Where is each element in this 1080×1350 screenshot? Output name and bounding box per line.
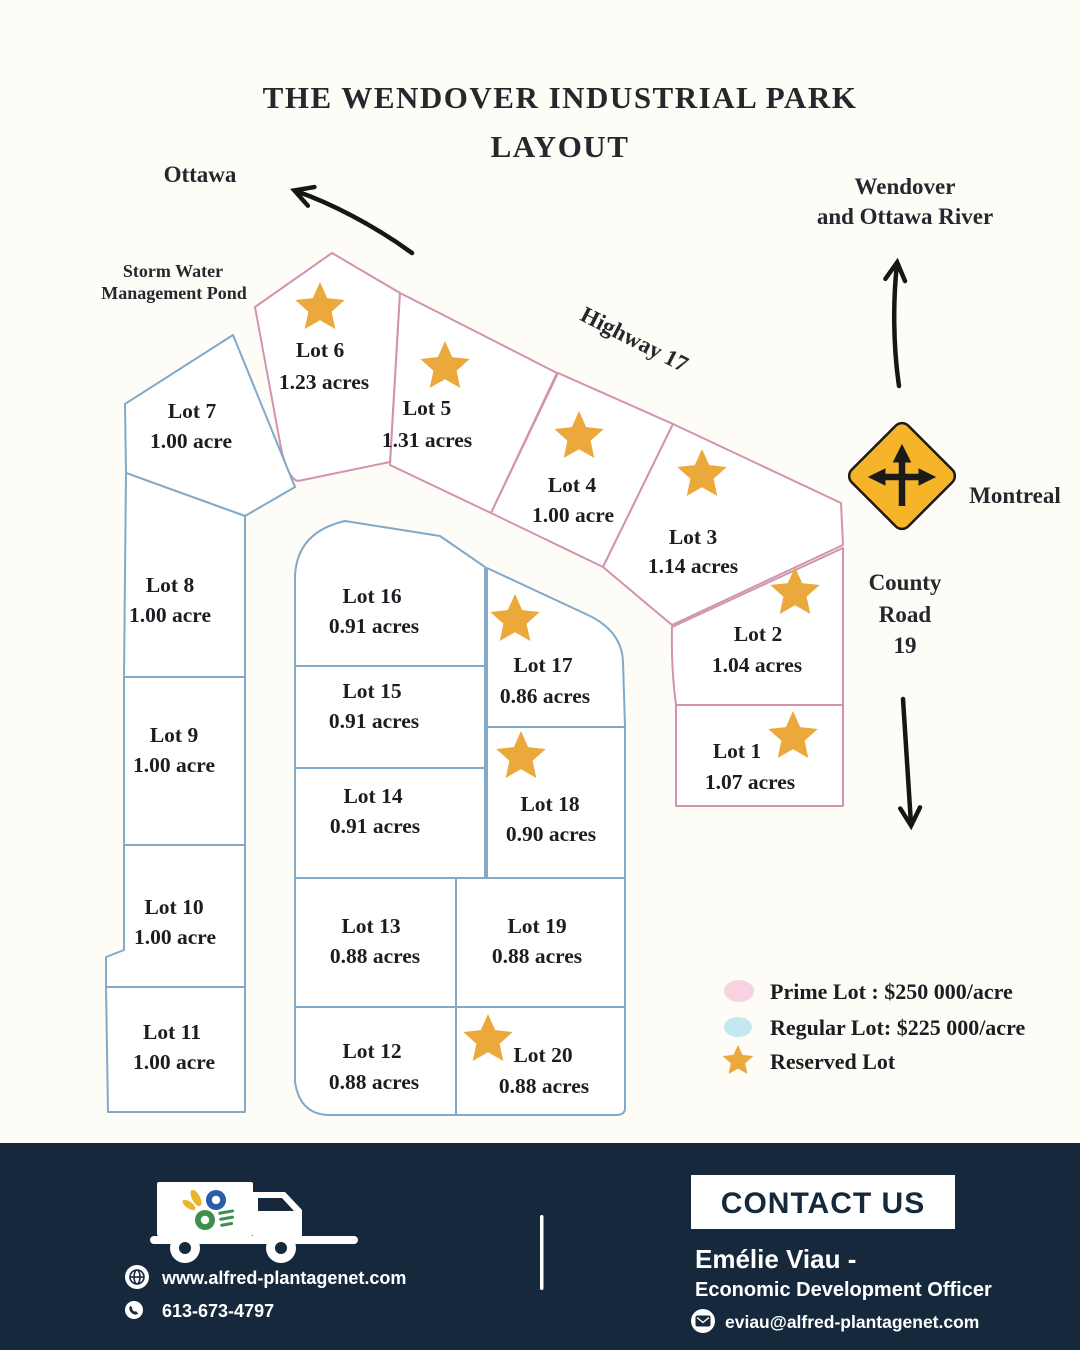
- prime-lot-swatch: [724, 980, 754, 1002]
- lot-name: Lot 4: [548, 473, 597, 497]
- lot-size: 0.91 acres: [329, 709, 419, 733]
- lot-size: 1.00 acre: [133, 753, 215, 777]
- contact-title: Economic Development Officer: [695, 1279, 992, 1301]
- lot-name: Lot 6: [296, 338, 345, 362]
- lot-size: 1.00 acre: [129, 603, 211, 627]
- lot-name: Lot 12: [342, 1039, 401, 1063]
- lot-size: 0.86 acres: [500, 684, 590, 708]
- lot-size: 0.90 acres: [506, 822, 596, 846]
- lot-13: Lot 13 0.88 acres: [295, 878, 456, 1007]
- footer: www.alfred-plantagenet.com 613-673-4797 …: [0, 1143, 1080, 1350]
- lot-19: Lot 19 0.88 acres: [456, 878, 625, 1007]
- lot-name: Lot 1: [713, 739, 761, 763]
- lot-name: Lot 20: [513, 1043, 572, 1067]
- lot-12: Lot 12 0.88 acres: [295, 1007, 456, 1115]
- lot-10: Lot 10 1.00 acre: [106, 845, 245, 987]
- lot-size: 0.91 acres: [329, 614, 419, 638]
- legend-prime-label: Prime Lot : $250 000/acre: [770, 979, 1013, 1004]
- lot-name: Lot 5: [403, 396, 451, 420]
- lot-1: Lot 1 1.07 acres: [676, 705, 843, 806]
- lot-size: 0.91 acres: [330, 814, 420, 838]
- lot-size: 1.00 acre: [150, 429, 232, 453]
- lot-name: Lot 17: [513, 653, 572, 677]
- regular-lot-swatch: [724, 1017, 752, 1037]
- lot-size: 0.88 acres: [492, 944, 582, 968]
- ottawa-label: Ottawa: [164, 162, 237, 187]
- lot-11: Lot 11 1.00 acre: [106, 987, 245, 1112]
- lot-name: Lot 8: [146, 573, 195, 597]
- email-text: eviau@alfred-plantagenet.com: [725, 1312, 979, 1332]
- wendover-label-line1: Wendover: [855, 174, 956, 199]
- lot-9: Lot 9 1.00 acre: [124, 677, 245, 845]
- lot-14: Lot 14 0.91 acres: [295, 768, 485, 878]
- footer-divider: [540, 1215, 544, 1290]
- county-road-label-line3: 19: [894, 633, 917, 658]
- lot-name: Lot 19: [507, 914, 566, 938]
- lot-name: Lot 7: [168, 399, 217, 423]
- pond-label-line1: Storm Water: [123, 261, 223, 281]
- lot-size: 1.00 acre: [133, 1050, 215, 1074]
- contact-name: Emélie Viau -: [695, 1244, 856, 1274]
- lot-size: 1.31 acres: [382, 428, 472, 452]
- phone-text: 613-673-4797: [162, 1301, 274, 1321]
- pond-label-line2: Management Pond: [101, 283, 247, 303]
- poster: THE WENDOVER INDUSTRIAL PARK LAYOUT Otta…: [0, 0, 1080, 1350]
- lot-name: Lot 3: [669, 525, 718, 549]
- contact-us-label: CONTACT US: [721, 1187, 925, 1220]
- lot-size: 0.88 acres: [329, 1070, 419, 1094]
- lot-name: Lot 14: [343, 784, 402, 808]
- lot-size: 1.00 acre: [134, 925, 216, 949]
- lot-size: 0.88 acres: [330, 944, 420, 968]
- globe-icon: [125, 1265, 149, 1289]
- lot-name: Lot 9: [150, 723, 198, 747]
- lot-size: 1.07 acres: [705, 770, 795, 794]
- county-road-label-line1: County: [869, 570, 942, 595]
- lot-name: Lot 16: [342, 584, 401, 608]
- phone-icon: [125, 1301, 143, 1319]
- lot-size: 1.23 acres: [279, 370, 369, 394]
- lot-size: 1.14 acres: [648, 554, 738, 578]
- lot-name: Lot 15: [342, 679, 401, 703]
- lot-name: Lot 10: [144, 895, 203, 919]
- lot-name: Lot 11: [143, 1020, 201, 1044]
- lot-18: Lot 18 0.90 acres: [487, 727, 625, 878]
- website-text: www.alfred-plantagenet.com: [161, 1268, 406, 1288]
- lot-size: 0.88 acres: [499, 1074, 589, 1098]
- email-contact[interactable]: eviau@alfred-plantagenet.com: [691, 1309, 979, 1333]
- lot-size: 1.00 acre: [532, 503, 614, 527]
- email-icon: [691, 1309, 715, 1333]
- lot-name: Lot 2: [734, 622, 782, 646]
- website-link[interactable]: www.alfred-plantagenet.com: [125, 1265, 406, 1289]
- legend-reserved-label: Reserved Lot: [770, 1049, 896, 1074]
- county-road-label-line2: Road: [879, 602, 932, 627]
- montreal-label: Montreal: [969, 483, 1061, 508]
- lot-name: Lot 18: [520, 792, 579, 816]
- lot-15: Lot 15 0.91 acres: [295, 666, 485, 768]
- page-title: THE WENDOVER INDUSTRIAL PARK: [263, 80, 858, 115]
- page-title-line2: LAYOUT: [491, 129, 630, 164]
- wendover-label-line2: and Ottawa River: [817, 204, 993, 229]
- lot-20: Lot 20 0.88 acres: [456, 1007, 625, 1115]
- legend-regular-label: Regular Lot: $225 000/acre: [770, 1015, 1025, 1040]
- lot-name: Lot 13: [341, 914, 400, 938]
- lot-size: 1.04 acres: [712, 653, 802, 677]
